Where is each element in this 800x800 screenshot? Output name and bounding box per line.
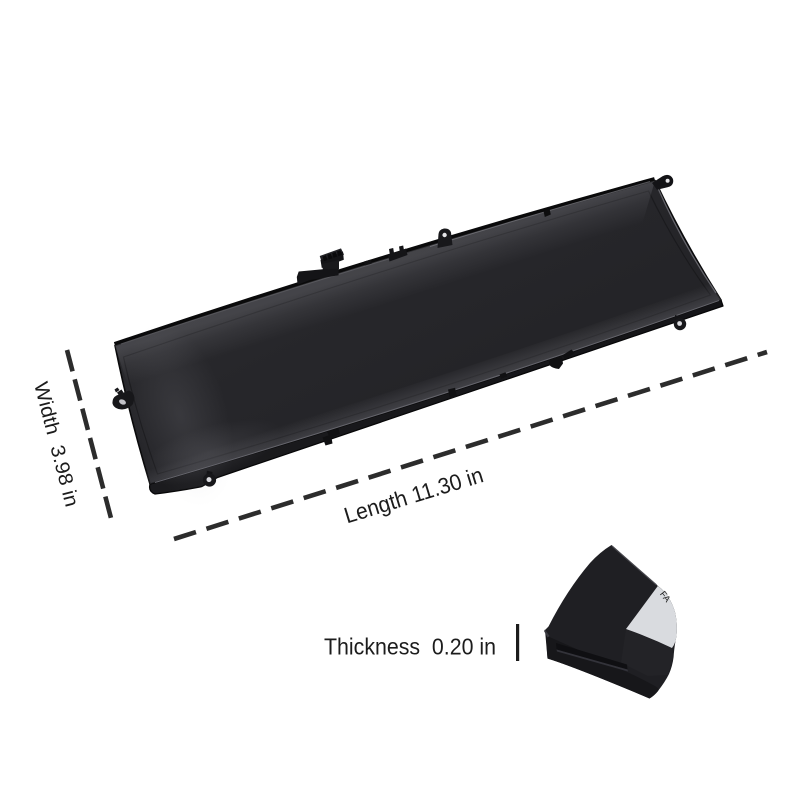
svg-text:Thickness 0.20 in: Thickness 0.20 in: [324, 634, 496, 660]
